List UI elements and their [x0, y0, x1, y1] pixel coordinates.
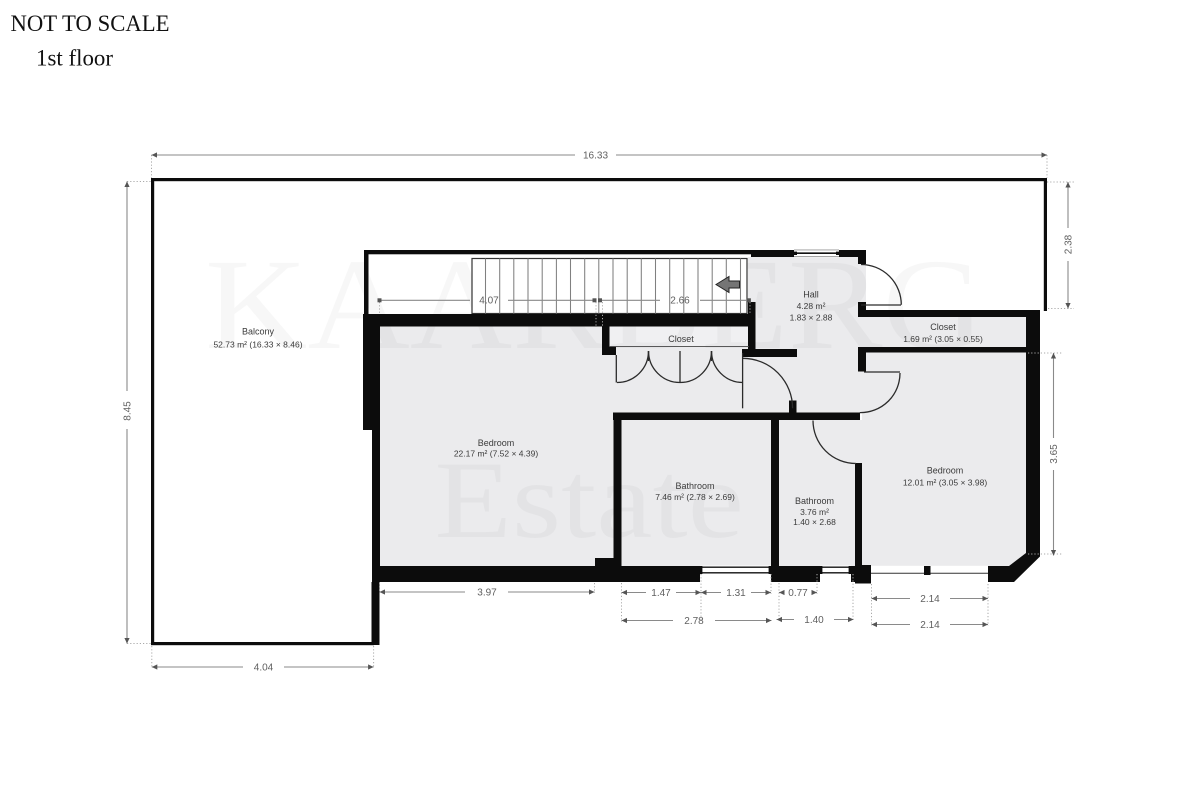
- svg-text:Closet: Closet: [668, 334, 694, 344]
- svg-text:Bathroom: Bathroom: [795, 496, 834, 506]
- svg-text:2.38: 2.38: [1063, 234, 1074, 254]
- svg-text:2.14: 2.14: [920, 620, 940, 631]
- svg-text:NOT TO SCALE: NOT TO SCALE: [11, 11, 170, 37]
- svg-text:4.04: 4.04: [254, 663, 274, 674]
- svg-text:2.78: 2.78: [684, 616, 704, 627]
- svg-text:1.31: 1.31: [726, 588, 746, 599]
- svg-text:2.66: 2.66: [670, 296, 690, 307]
- svg-text:1.47: 1.47: [651, 588, 671, 599]
- svg-text:Closet: Closet: [930, 322, 956, 332]
- svg-text:2.14: 2.14: [920, 594, 940, 605]
- svg-text:7.46 m² (2.78 × 2.69): 7.46 m² (2.78 × 2.69): [655, 492, 735, 502]
- svg-text:1.83 × 2.88: 1.83 × 2.88: [790, 313, 833, 323]
- svg-text:16.33: 16.33: [583, 151, 608, 162]
- svg-text:1st floor: 1st floor: [36, 46, 113, 71]
- svg-text:Balcony: Balcony: [242, 327, 275, 337]
- svg-text:4.28 m²: 4.28 m²: [797, 301, 826, 311]
- svg-text:1.40: 1.40: [804, 615, 824, 626]
- svg-text:Hall: Hall: [803, 290, 819, 300]
- svg-text:4.07: 4.07: [479, 296, 499, 307]
- svg-text:1.40 × 2.68: 1.40 × 2.68: [793, 517, 836, 527]
- svg-text:3.76 m²: 3.76 m²: [800, 507, 829, 517]
- svg-text:Bedroom: Bedroom: [927, 466, 964, 476]
- svg-text:22.17 m² (7.52 × 4.39): 22.17 m² (7.52 × 4.39): [454, 449, 539, 459]
- svg-text:0.77: 0.77: [788, 588, 808, 599]
- svg-text:12.01 m² (3.05 × 3.98): 12.01 m² (3.05 × 3.98): [903, 478, 988, 488]
- svg-text:3.65: 3.65: [1049, 444, 1060, 464]
- svg-text:Bathroom: Bathroom: [675, 481, 714, 491]
- svg-text:52.73 m² (16.33 × 8.46): 52.73 m² (16.33 × 8.46): [213, 340, 302, 350]
- svg-text:1.69 m² (3.05 × 0.55): 1.69 m² (3.05 × 0.55): [903, 334, 983, 344]
- svg-text:8.45: 8.45: [122, 401, 133, 421]
- svg-text:Bedroom: Bedroom: [478, 438, 515, 448]
- svg-text:3.97: 3.97: [477, 587, 497, 598]
